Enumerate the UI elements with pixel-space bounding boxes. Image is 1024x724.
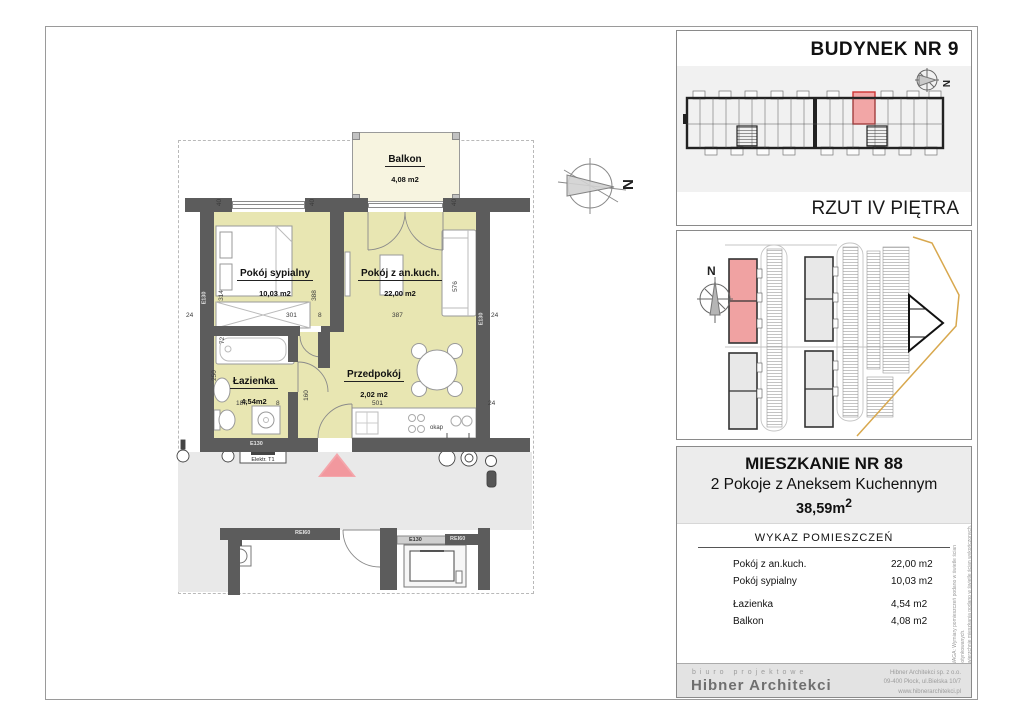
site-north-letter: N bbox=[707, 264, 716, 278]
dim-label: 24 bbox=[491, 312, 498, 319]
room-row: Pokój z an.kuch. 22,00 m2 bbox=[733, 556, 963, 573]
building-compass bbox=[915, 68, 939, 92]
room-row: Balkon 4,08 m2 bbox=[733, 613, 963, 630]
building-floorplan-graphic: N bbox=[677, 66, 971, 192]
elektr-label: Elektr. T1 bbox=[251, 457, 274, 463]
dim-label: 72 bbox=[219, 337, 226, 344]
studio-name: Hibner Architekci bbox=[691, 677, 832, 694]
apartment-subtitle: 2 Pokoje z Aneksem Kuchennym bbox=[681, 476, 967, 494]
address-line: 09-400 Płock, ul.Bielska 10/7 bbox=[884, 678, 961, 687]
dim-label: 40 bbox=[216, 199, 223, 206]
address-line: Hibner Architekci sp. z o.o. bbox=[884, 669, 961, 678]
dim-label: 8 bbox=[318, 312, 322, 319]
dim-label: 388 bbox=[311, 290, 318, 301]
building-north-letter: N bbox=[940, 80, 951, 87]
room-area: 2,02 m2 bbox=[360, 390, 388, 399]
wall-class-label: REI60 bbox=[450, 536, 465, 542]
room-row: Łazienka 4,54 m2 bbox=[733, 596, 963, 613]
disclaimer-line: UWAGA: Wymiary pomieszczeń podano w świe… bbox=[952, 519, 967, 669]
room-row-name: Pokój z an.kuch. bbox=[733, 559, 891, 570]
dim-label: 301 bbox=[286, 312, 297, 319]
bedroom-label: Pokój sypialny 10,03 m2 bbox=[237, 262, 313, 302]
dim-label: 160 bbox=[303, 390, 310, 401]
building-panel: BUDYNEK NR 9 bbox=[676, 30, 972, 226]
wall bbox=[288, 332, 298, 362]
room-area: 10,03 m2 bbox=[259, 289, 291, 298]
wall-class-label: E130 bbox=[409, 537, 422, 543]
living-label: Pokój z an.kuch. 22,00 m2 bbox=[358, 262, 442, 302]
balcony-door-sill bbox=[368, 203, 443, 208]
dim-label: 24 bbox=[186, 312, 193, 319]
hall-label: Przedpokój 2,02 m2 bbox=[338, 363, 410, 403]
site-compass bbox=[697, 277, 733, 323]
dim-label: 314 bbox=[218, 290, 225, 301]
studio-footer: biuro projektowe Hibner Architekci Hibne… bbox=[677, 663, 971, 697]
wall-class-label: REI60 bbox=[295, 530, 310, 536]
total-area-sup: 2 bbox=[845, 496, 852, 510]
building-caption: RZUT IV PIĘTRA bbox=[677, 192, 971, 226]
wall bbox=[318, 332, 330, 368]
studio-tagline: biuro projektowe bbox=[692, 669, 807, 676]
room-row-name: Łazienka bbox=[733, 599, 891, 610]
dim-label: 501 bbox=[372, 400, 383, 407]
disclaimer-line: Powierzchnię mieszkania podano w świetle… bbox=[967, 519, 975, 669]
room-list-divider bbox=[698, 547, 951, 548]
bedroom-window bbox=[232, 201, 305, 209]
wall-left bbox=[200, 198, 214, 452]
wall-class-label: E130 bbox=[478, 313, 484, 326]
room-row-name: Balkon bbox=[733, 616, 891, 627]
address-line: www.hibnerarchitekci.pl bbox=[884, 688, 961, 697]
dim-label: 187 bbox=[236, 400, 247, 407]
building-title: BUDYNEK NR 9 bbox=[677, 31, 971, 66]
wall-corridor bbox=[220, 528, 340, 540]
bathroom-label: Łazienka 4,54m2 bbox=[225, 370, 283, 410]
entrance-marker-triangle bbox=[318, 453, 356, 477]
dim-label: 576 bbox=[452, 281, 459, 292]
apartment-total-area: 38,59m2 bbox=[681, 496, 967, 517]
north-letter: N bbox=[619, 179, 636, 190]
wall-elevator bbox=[380, 528, 397, 590]
wall-class-label: E130 bbox=[201, 292, 207, 305]
site-plan-graphic: N bbox=[677, 231, 971, 439]
wall-class-label: E130 bbox=[250, 441, 263, 447]
studio-address: Hibner Architekci sp. z o.o. 09-400 Płoc… bbox=[884, 669, 961, 697]
room-row: Pokój sypialny 10,03 m2 bbox=[733, 573, 963, 590]
apartment-info-panel: MIESZKANIE NR 88 2 Pokoje z Aneksem Kuch… bbox=[676, 446, 972, 698]
wall-bottom bbox=[352, 438, 530, 452]
apartment-header: MIESZKANIE NR 88 2 Pokoje z Aneksem Kuch… bbox=[677, 447, 971, 524]
dim-label: 250 bbox=[211, 370, 218, 381]
room-name: Pokój sypialny bbox=[237, 268, 313, 281]
room-list: Pokój z an.kuch. 22,00 m2 Pokój sypialny… bbox=[733, 556, 963, 630]
floor-plan-sheet: Balkon 4,08 m2 bbox=[0, 0, 1024, 724]
room-row-name: Pokój sypialny bbox=[733, 576, 891, 587]
dim-label: 24 bbox=[488, 400, 495, 407]
dim-label: 8 bbox=[276, 400, 280, 407]
site-plan-panel: N bbox=[676, 230, 972, 440]
dim-label: 40 bbox=[309, 199, 316, 206]
dim-label: 387 bbox=[392, 312, 403, 319]
room-list-title: WYKAZ POMIESZCZEŃ bbox=[677, 532, 971, 544]
room-name: Łazienka bbox=[230, 376, 278, 389]
legal-disclaimer: UWAGA: Wymiary pomieszczeń podano w świe… bbox=[952, 519, 975, 669]
okap-label: okap bbox=[430, 425, 443, 431]
wall bbox=[288, 392, 298, 438]
wall-divider bbox=[330, 212, 344, 332]
building-plan-band: N bbox=[677, 66, 971, 192]
wall bbox=[228, 540, 240, 595]
room-name: Przedpokój bbox=[344, 369, 404, 382]
dim-label: 40 bbox=[451, 199, 458, 206]
room-name: Pokój z an.kuch. bbox=[358, 268, 442, 281]
total-area-value: 38,59m bbox=[796, 501, 845, 517]
apartment-title: MIESZKANIE NR 88 bbox=[681, 454, 967, 474]
room-area: 22,00 m2 bbox=[384, 289, 416, 298]
